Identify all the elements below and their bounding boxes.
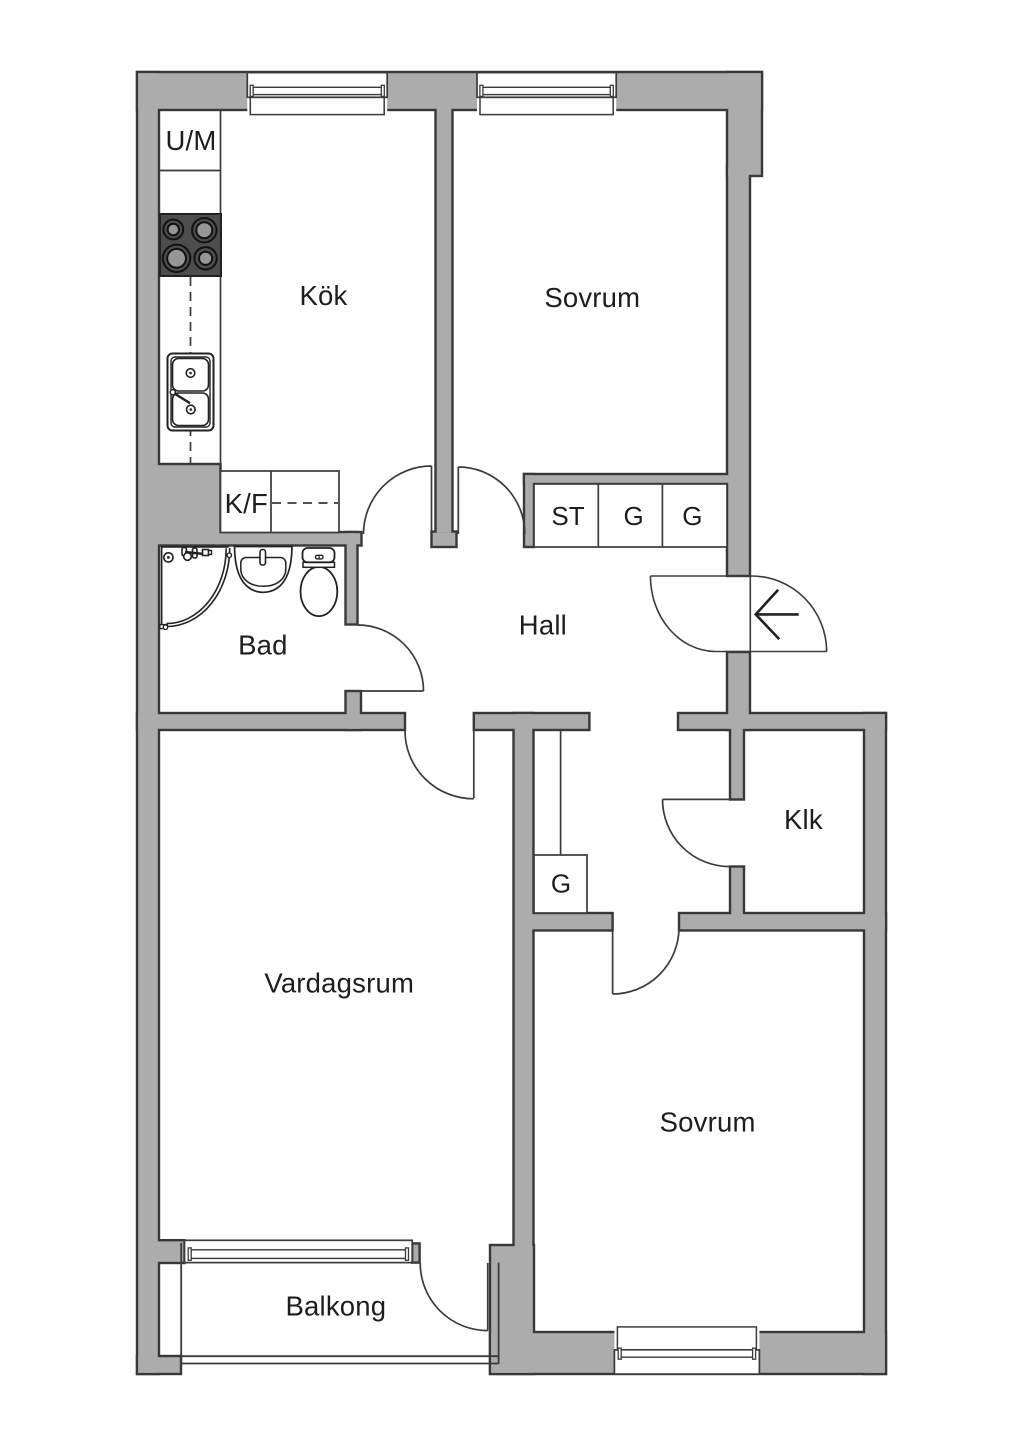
svg-text:Sovrum: Sovrum: [544, 282, 640, 313]
svg-text:G: G: [551, 869, 571, 899]
svg-text:Sovrum: Sovrum: [660, 1107, 756, 1138]
svg-text:U/M: U/M: [165, 125, 216, 156]
svg-text:Hall: Hall: [519, 609, 567, 640]
svg-text:ST: ST: [551, 501, 584, 531]
svg-text:Kök: Kök: [300, 280, 348, 311]
svg-text:Bad: Bad: [238, 630, 288, 661]
svg-text:Vardagsrum: Vardagsrum: [264, 967, 414, 998]
svg-text:K/F: K/F: [225, 488, 268, 519]
svg-text:G: G: [623, 501, 643, 531]
svg-text:Klk: Klk: [784, 804, 823, 835]
svg-text:G: G: [682, 501, 702, 531]
svg-text:Balkong: Balkong: [286, 1291, 387, 1322]
